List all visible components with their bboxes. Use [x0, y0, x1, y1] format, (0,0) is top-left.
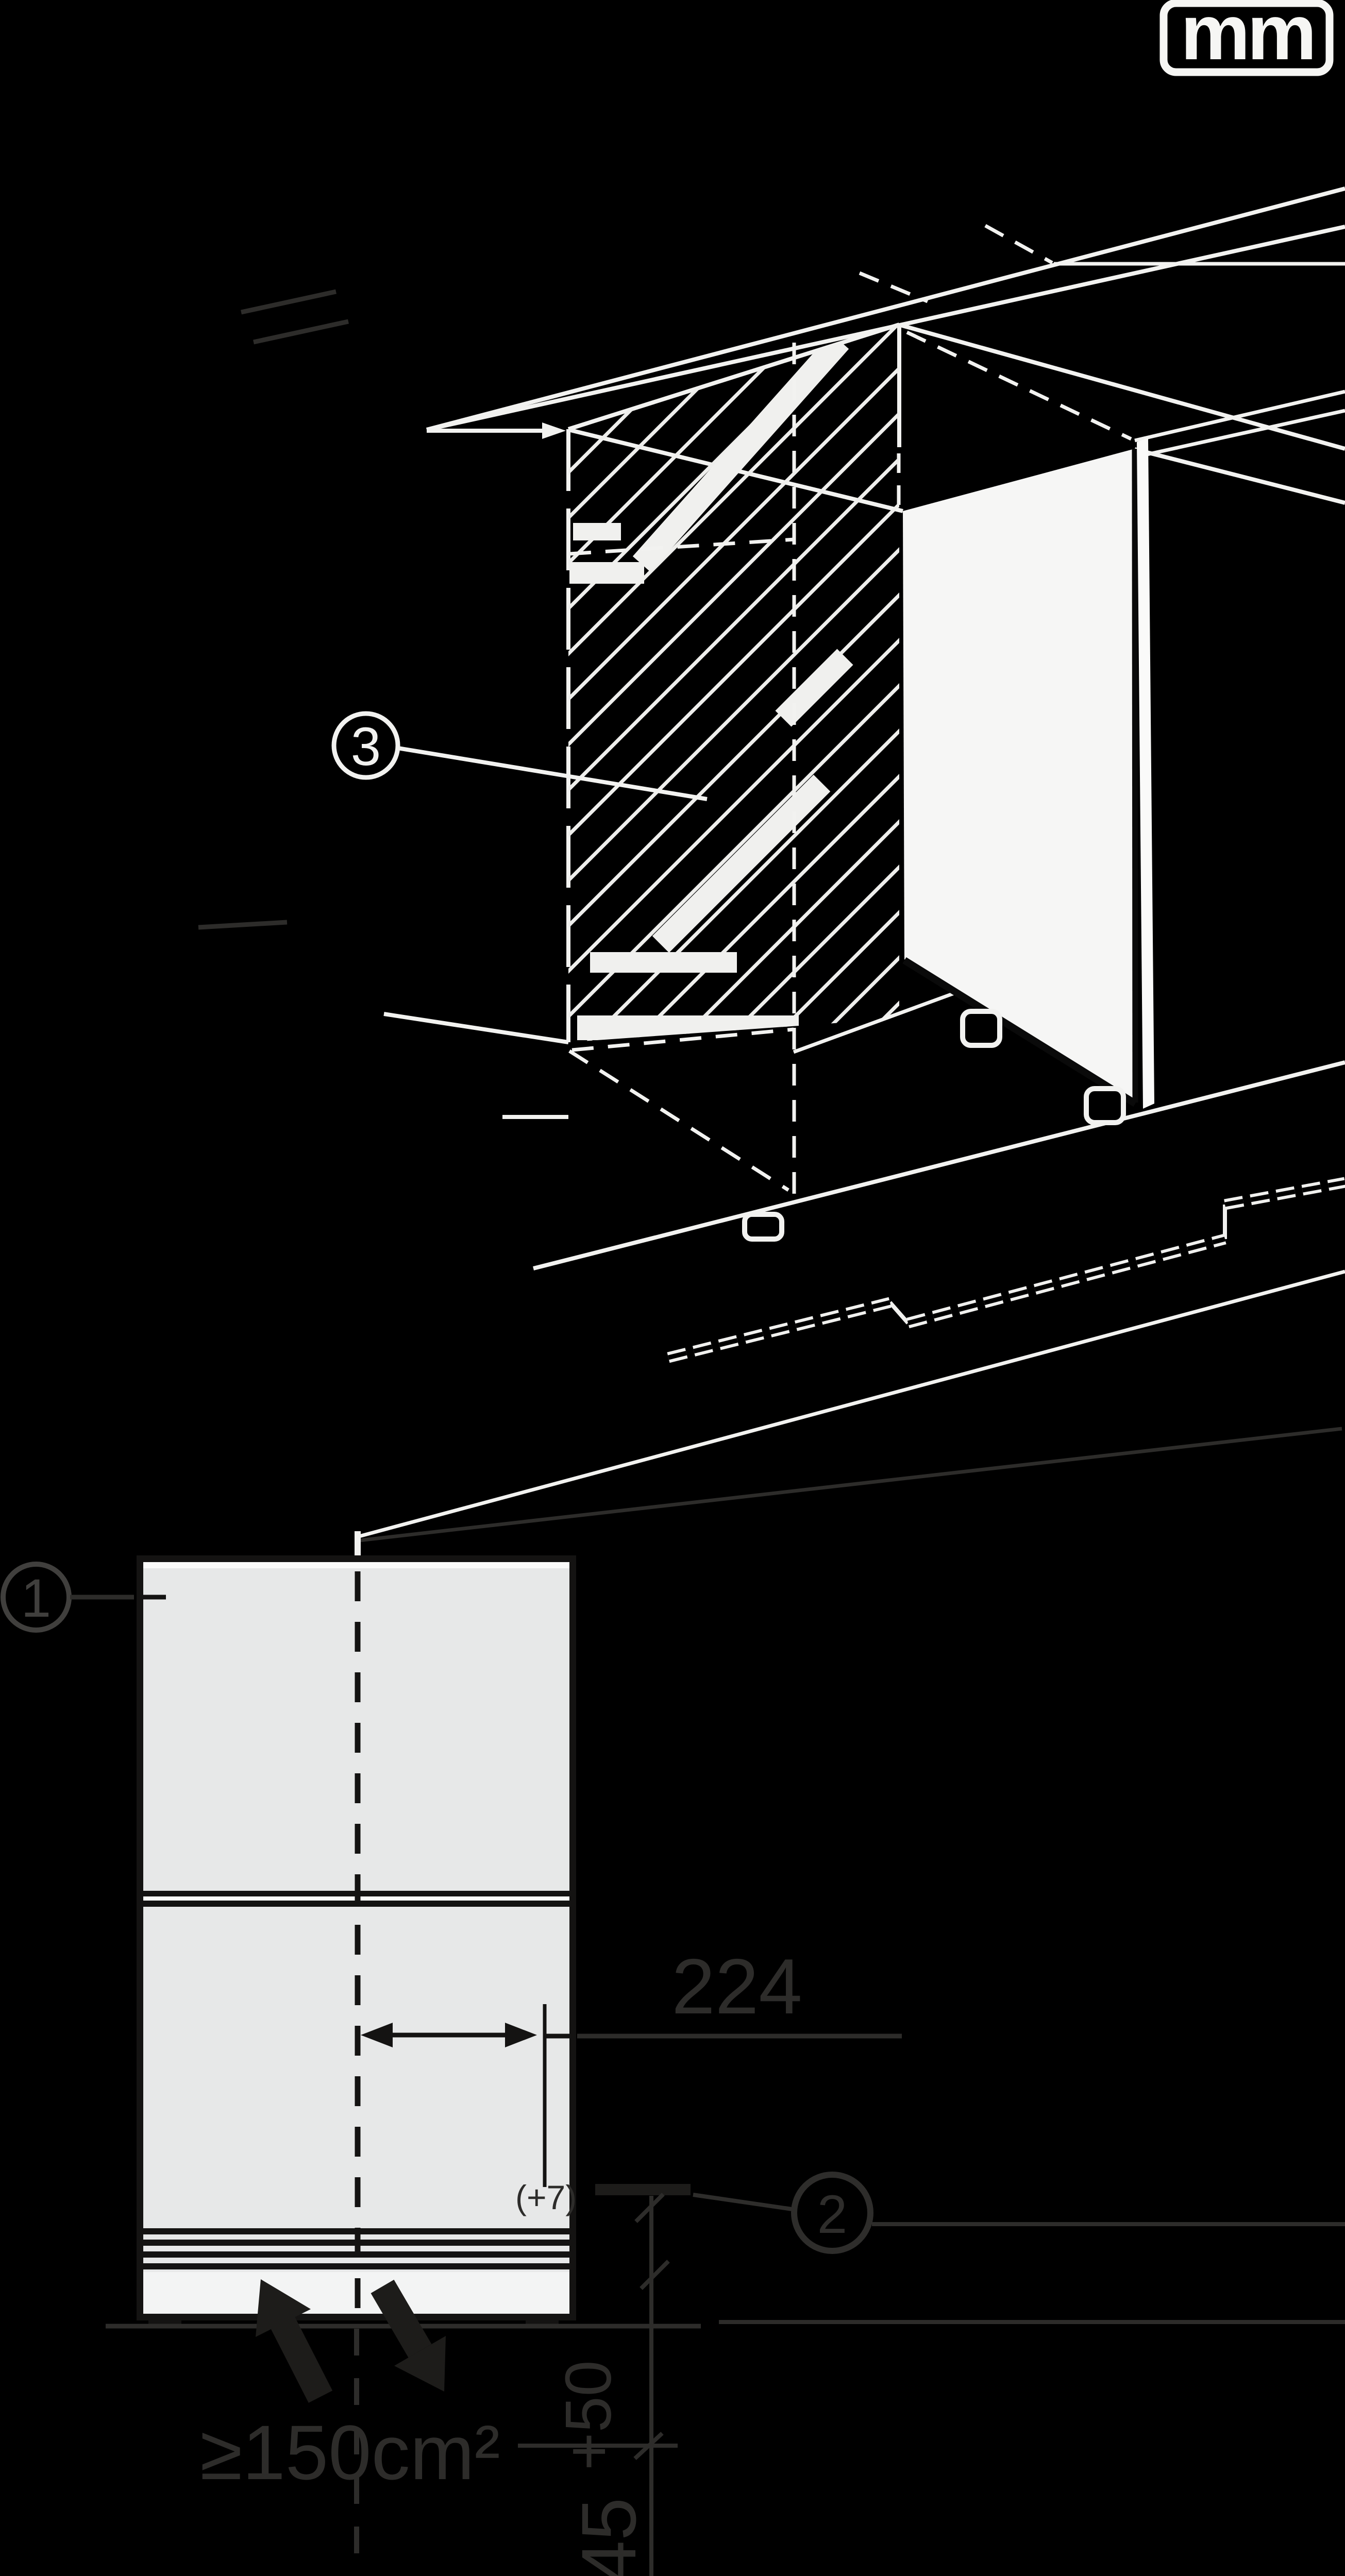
svg-text:3: 3 [351, 717, 381, 777]
svg-text:1: 1 [21, 1568, 51, 1629]
svg-text:2: 2 [817, 2184, 847, 2245]
svg-text:(+7): (+7) [515, 2178, 577, 2216]
svg-text:224: 224 [671, 1943, 802, 2030]
svg-text:145: 145 [565, 2498, 652, 2576]
svg-text:+50: +50 [552, 2360, 625, 2470]
svg-text:≥150cm²: ≥150cm² [200, 2409, 500, 2496]
svg-text:mm: mm [1181, 0, 1314, 76]
